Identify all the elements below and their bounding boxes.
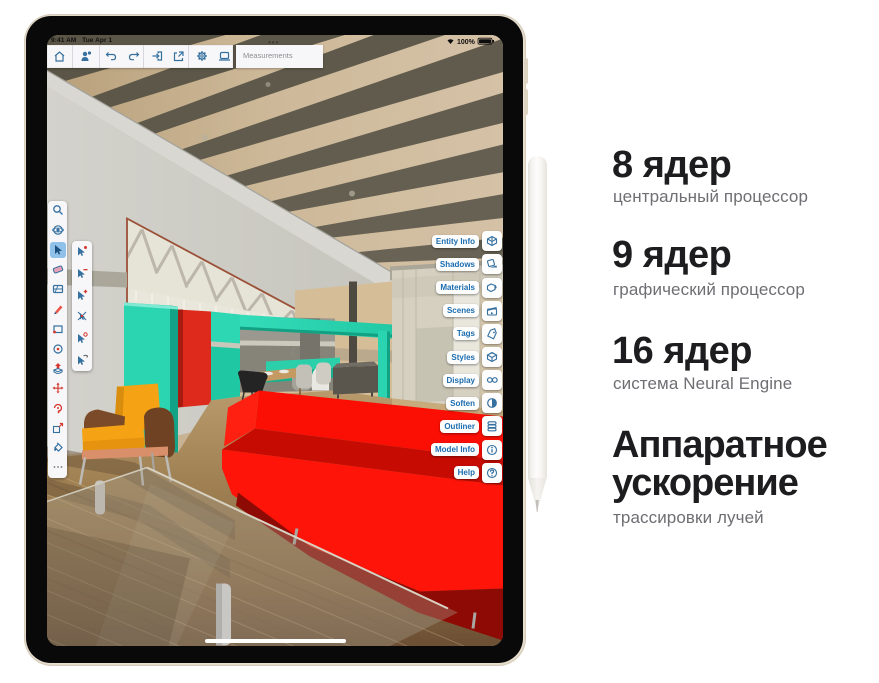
svg-text:100%: 100%: [457, 39, 476, 45]
